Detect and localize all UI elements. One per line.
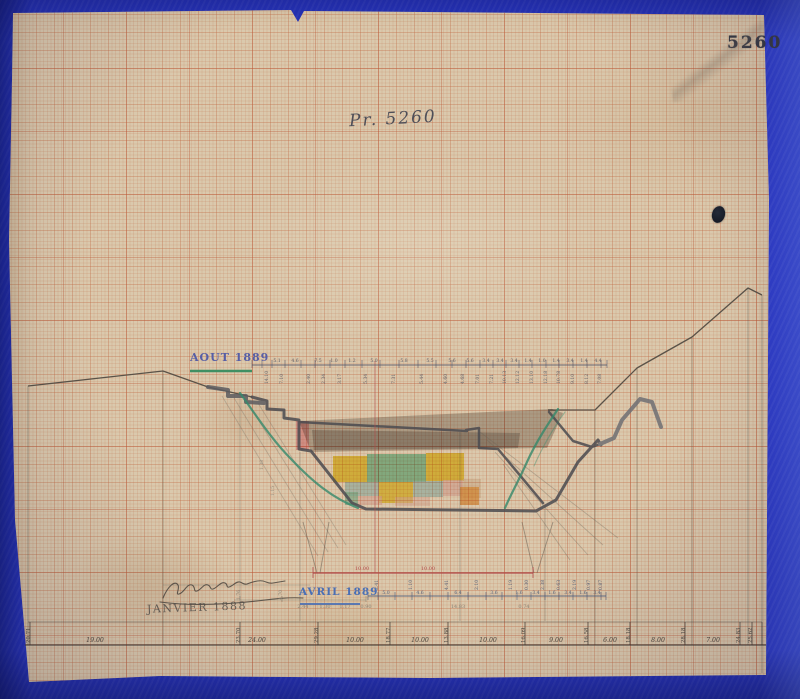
scanner-background: 5.14.67.51.01.25.05.85.55.65.63.43.43.41… (0, 0, 800, 699)
drawing-sheet-paper (0, 0, 800, 699)
